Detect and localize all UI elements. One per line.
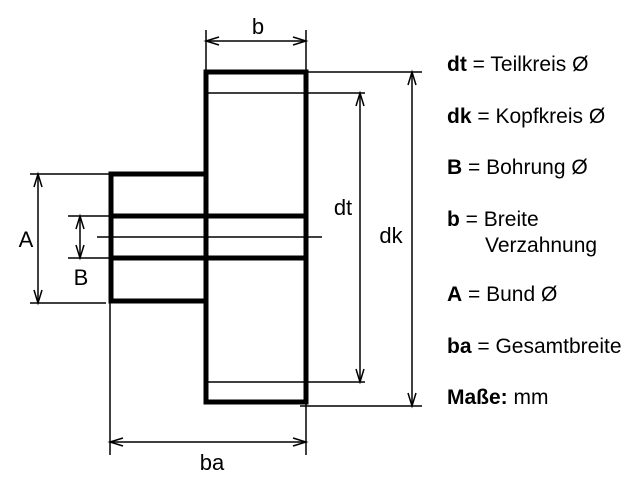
legend-text: = Breite [466, 208, 539, 231]
legend-line-1: b = Breite [447, 207, 597, 233]
legend-text: = Teilkreis Ø [473, 53, 589, 76]
legend-text: = Gesamtbreite [477, 335, 621, 358]
legend-text: = Bohrung Ø [468, 156, 588, 179]
legend-item-units: Maße: mm [447, 385, 549, 411]
dim-B-label: B [74, 265, 89, 290]
legend-text: = Bund Ø [468, 283, 557, 306]
dim-dk-label: dk [379, 223, 403, 248]
legend-key: A [447, 283, 462, 306]
gear-drawing-page: b A B dt [0, 0, 640, 480]
dim-dt [356, 93, 364, 382]
legend-item-dt: dt = Teilkreis Ø [447, 52, 588, 78]
legend-key: Maße: [447, 386, 508, 409]
dim-b-label: b [252, 14, 264, 39]
legend-text: = Kopfkreis Ø [477, 105, 605, 128]
legend-line-2: Verzahnung [485, 233, 597, 259]
legend-text: mm [514, 386, 549, 409]
legend-key: dt [447, 53, 467, 76]
legend-key: B [447, 156, 462, 179]
legend-item-A: A = Bund Ø [447, 282, 557, 308]
legend-item-B: B = Bohrung Ø [447, 155, 588, 181]
dim-dt-label: dt [334, 195, 352, 220]
dim-A [30, 174, 110, 303]
legend-key: ba [447, 335, 472, 358]
dim-dk [408, 72, 416, 406]
legend-item-b: b = Breite Verzahnung [447, 207, 597, 259]
legend-item-ba: ba = Gesamtbreite [447, 334, 622, 360]
legend-key: dk [447, 105, 472, 128]
dim-ba-label: ba [200, 450, 225, 475]
legend-item-dk: dk = Kopfkreis Ø [447, 104, 605, 130]
reference-lines [97, 72, 422, 406]
legend-key: b [447, 208, 460, 231]
dim-A-label: A [19, 227, 34, 252]
